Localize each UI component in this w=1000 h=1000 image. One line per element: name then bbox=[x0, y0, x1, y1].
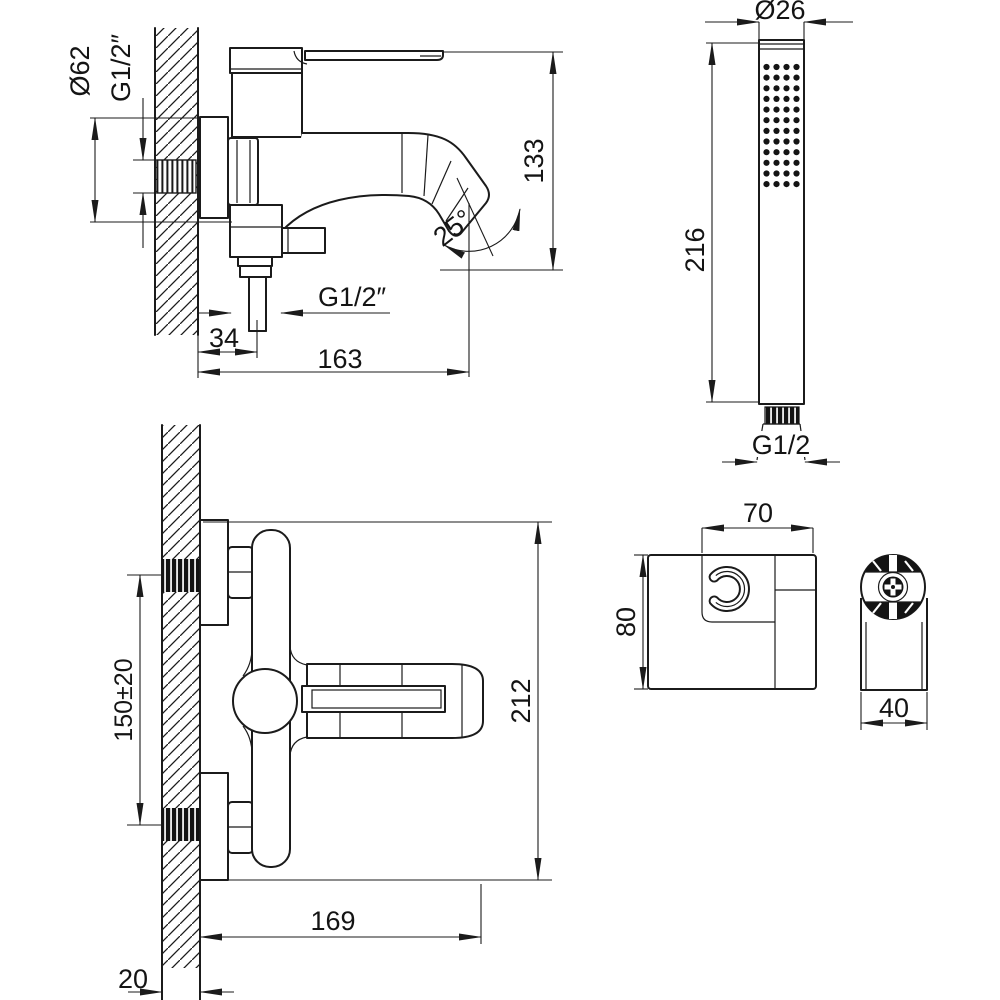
hex-nut bbox=[228, 138, 258, 205]
diverter-block bbox=[230, 205, 325, 331]
front-view: 150±20 212 169 20 bbox=[110, 425, 552, 1000]
dim-label-side-height: 133 bbox=[519, 138, 549, 183]
dim-front-width: 169 bbox=[200, 884, 481, 944]
technical-drawing-page: Ø62 G1/2″ 133 25° G1/2″ bbox=[0, 0, 1000, 1000]
hand-shower-thread bbox=[765, 407, 799, 424]
dim-mounting-centers: 150±20 bbox=[110, 575, 163, 825]
dim-wall-thread: G1/2″ bbox=[106, 34, 157, 248]
dim-label-wall-thread: G1/2″ bbox=[106, 34, 136, 103]
dim-holder-width: 70 bbox=[702, 498, 813, 553]
lever-handle bbox=[294, 51, 443, 64]
holder-views: 70 80 bbox=[611, 498, 927, 730]
dim-label-shower-thread: G1/2 bbox=[752, 430, 811, 460]
holder-front-view bbox=[648, 555, 816, 689]
dim-label-wall-thickness: 20 bbox=[118, 964, 148, 994]
front-lever bbox=[302, 664, 483, 738]
dim-label-holder-width: 70 bbox=[743, 498, 773, 528]
dim-label-flange-diameter: Ø62 bbox=[65, 45, 95, 96]
side-view: Ø62 G1/2″ 133 25° G1/2″ bbox=[65, 28, 563, 378]
upper-mounting-plate bbox=[200, 520, 228, 625]
phillips-screw-icon bbox=[879, 573, 908, 602]
dim-label-hose-offset: 34 bbox=[209, 323, 239, 353]
lower-wall-thread bbox=[162, 808, 200, 841]
wall-thread-connection bbox=[157, 160, 196, 193]
bath-mixer-dimension-drawing: Ø62 G1/2″ 133 25° G1/2″ bbox=[0, 0, 1000, 1000]
dim-label-front-width: 169 bbox=[310, 906, 355, 936]
front-knob bbox=[233, 669, 297, 733]
dim-wall-thickness: 20 bbox=[118, 964, 234, 994]
dim-shower-thread: G1/2 bbox=[722, 430, 840, 462]
dim-label-shower-length: 216 bbox=[680, 227, 710, 272]
lower-hex-nut bbox=[228, 802, 253, 853]
upper-wall-thread bbox=[162, 559, 200, 592]
lower-mounting-plate bbox=[200, 773, 228, 880]
hand-shower-view: Ø26 216 G1/2 bbox=[680, 0, 853, 462]
dim-shower-length: 216 bbox=[680, 43, 759, 402]
upper-hex-nut bbox=[228, 547, 253, 598]
dim-holder-height: 80 bbox=[611, 555, 648, 689]
dim-label-head-diameter: Ø26 bbox=[754, 0, 805, 25]
wall-section-hatch-front bbox=[162, 425, 200, 968]
dim-hose-thread: G1/2″ bbox=[198, 282, 390, 313]
dim-label-holder-depth: 40 bbox=[879, 693, 909, 723]
mounting-plate bbox=[200, 117, 228, 218]
dim-label-hose-thread: G1/2″ bbox=[318, 282, 387, 312]
dim-label-front-height: 212 bbox=[506, 678, 536, 723]
dim-label-side-depth: 163 bbox=[317, 344, 362, 374]
dim-label-mounting-centers: 150±20 bbox=[110, 658, 138, 741]
holder-side-view bbox=[861, 555, 927, 690]
dim-label-holder-height: 80 bbox=[611, 607, 641, 637]
mixer-body bbox=[232, 73, 302, 137]
dim-head-diameter: Ø26 bbox=[705, 0, 853, 40]
dim-holder-depth: 40 bbox=[861, 692, 927, 730]
hand-shower-body bbox=[759, 40, 804, 404]
